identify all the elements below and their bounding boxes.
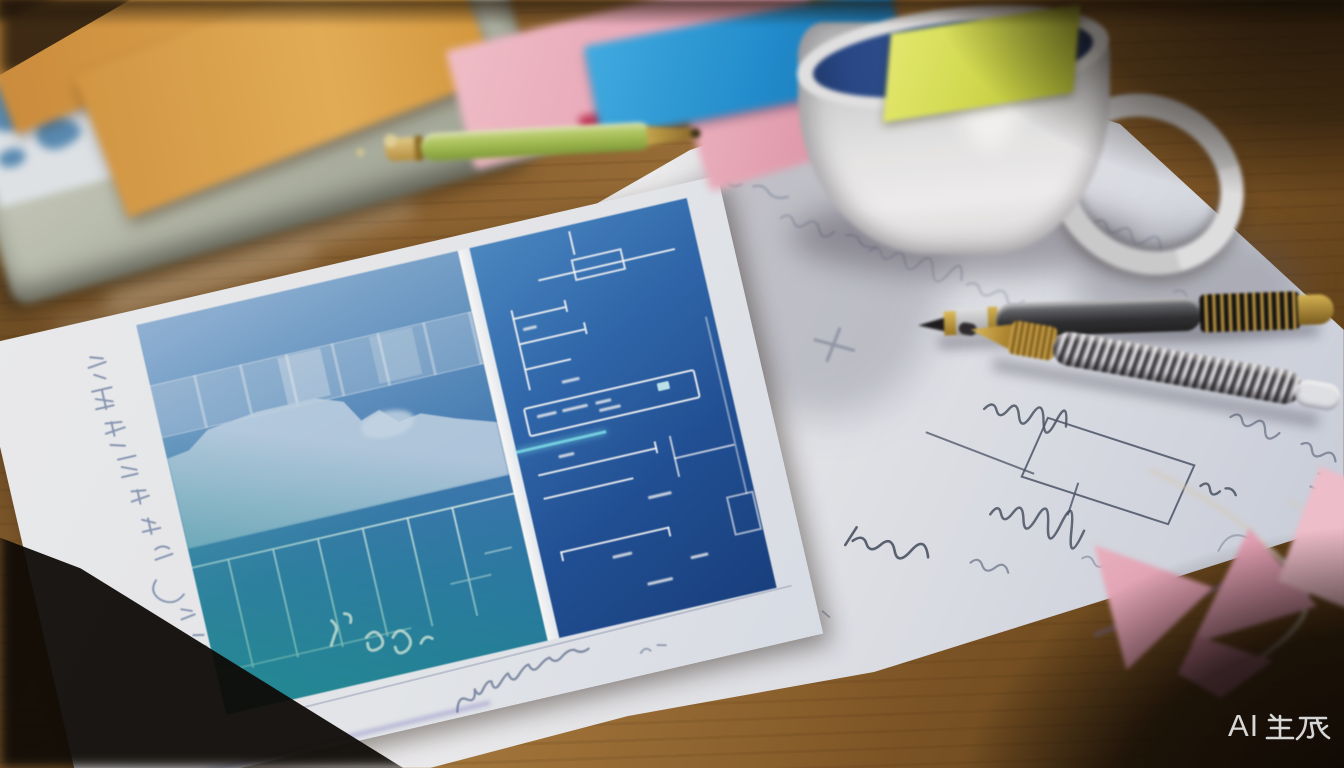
wf-line: [543, 477, 633, 500]
wf-rect: [571, 248, 627, 281]
pen-tip: [958, 322, 978, 337]
desk-scene: AI: [0, 0, 1344, 768]
green-pen-tip: [690, 128, 701, 139]
green-pen-barrel: [420, 122, 653, 162]
wf-tick: [583, 322, 588, 334]
wf-rect: [726, 491, 762, 536]
wf-dim-h: [674, 444, 735, 460]
wf-tick: [654, 441, 659, 453]
wf-tree-branch: [524, 358, 571, 371]
wf-tick-v: [568, 231, 575, 255]
bokeh-glint: [356, 148, 365, 157]
wf-tree-branch: [512, 306, 565, 320]
wf-tick: [667, 526, 671, 536]
ai-watermark-cjk-glyphs: [1264, 708, 1334, 744]
pen-end-cap: [1297, 294, 1334, 325]
wf-edge-v: [705, 317, 748, 495]
ai-watermark-latin: AI: [1228, 708, 1259, 744]
wf-tick: [564, 300, 569, 312]
wf-tree-branch: [518, 328, 585, 345]
pen-gold-ridged-ring: [1007, 320, 1058, 361]
green-pen-tip-cone: [646, 123, 695, 145]
wf-tree-trunk: [510, 310, 530, 390]
top-edge-shadow: [0, 0, 1344, 26]
pen-clear-tip: [1293, 378, 1343, 413]
ai-watermark: AI: [1228, 708, 1334, 744]
wf-bar-outline: [523, 369, 701, 438]
wf-line: [560, 526, 670, 553]
bokeh-glint: [384, 134, 397, 147]
wf-line: [538, 447, 657, 476]
pen-ridged-grip: [1199, 291, 1300, 332]
pen-tip: [918, 315, 947, 334]
